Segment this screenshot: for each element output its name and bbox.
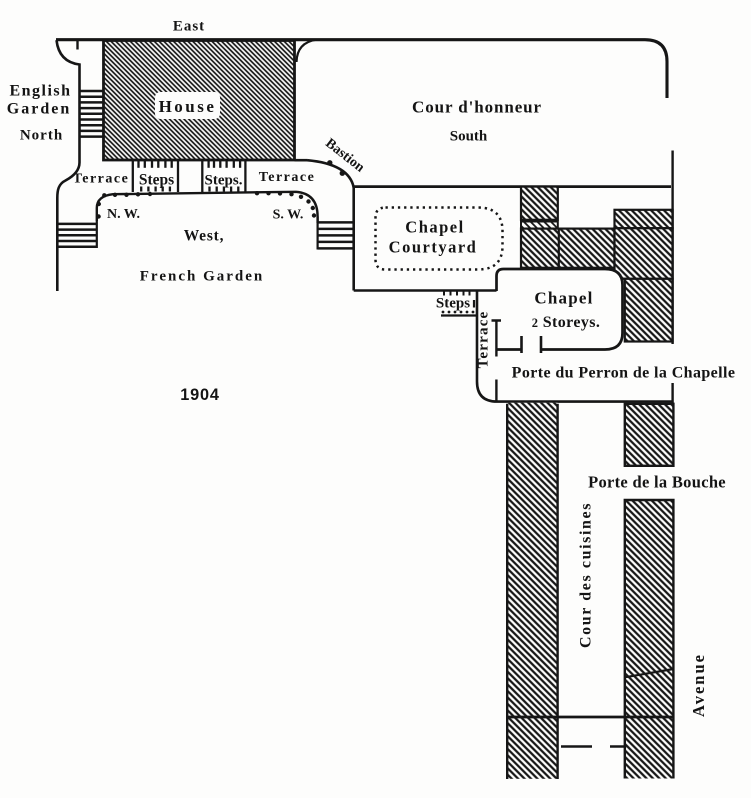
svg-text:N. W.: N. W.: [107, 207, 140, 222]
svg-text:Chapel: Chapel: [405, 218, 464, 237]
svg-text:2 Storeys.: 2 Storeys.: [532, 314, 601, 331]
svg-text:Cour des cuisines: Cour des cuisines: [578, 502, 595, 648]
svg-text:Steps.: Steps.: [205, 173, 243, 189]
svg-text:French Garden: French Garden: [140, 269, 264, 285]
svg-text:East: East: [173, 19, 205, 35]
svg-text:Porte du Perron de la Chapelle: Porte du Perron de la Chapelle: [512, 365, 736, 382]
svg-text:North: North: [20, 128, 63, 144]
svg-text:Cour d'honneur: Cour d'honneur: [412, 98, 542, 117]
svg-text:Steps: Steps: [436, 296, 470, 312]
svg-text:Chapel: Chapel: [534, 289, 593, 308]
svg-text:House: House: [159, 97, 217, 116]
svg-text:Terrace: Terrace: [259, 170, 316, 185]
svg-text:West,: West,: [184, 228, 225, 245]
svg-text:Terrace: Terrace: [476, 311, 492, 369]
svg-text:Steps: Steps: [139, 172, 174, 189]
svg-text:Terrace: Terrace: [73, 172, 130, 187]
svg-text:Avenue: Avenue: [689, 653, 708, 717]
svg-text:Garden: Garden: [7, 101, 71, 118]
svg-text:1904: 1904: [180, 386, 219, 404]
svg-text:Courtyard: Courtyard: [389, 238, 478, 257]
svg-text:Porte de la Bouche: Porte de la Bouche: [588, 473, 726, 492]
svg-text:English: English: [9, 83, 71, 100]
svg-text:S. W.: S. W.: [273, 208, 304, 223]
svg-text:South: South: [450, 129, 488, 145]
